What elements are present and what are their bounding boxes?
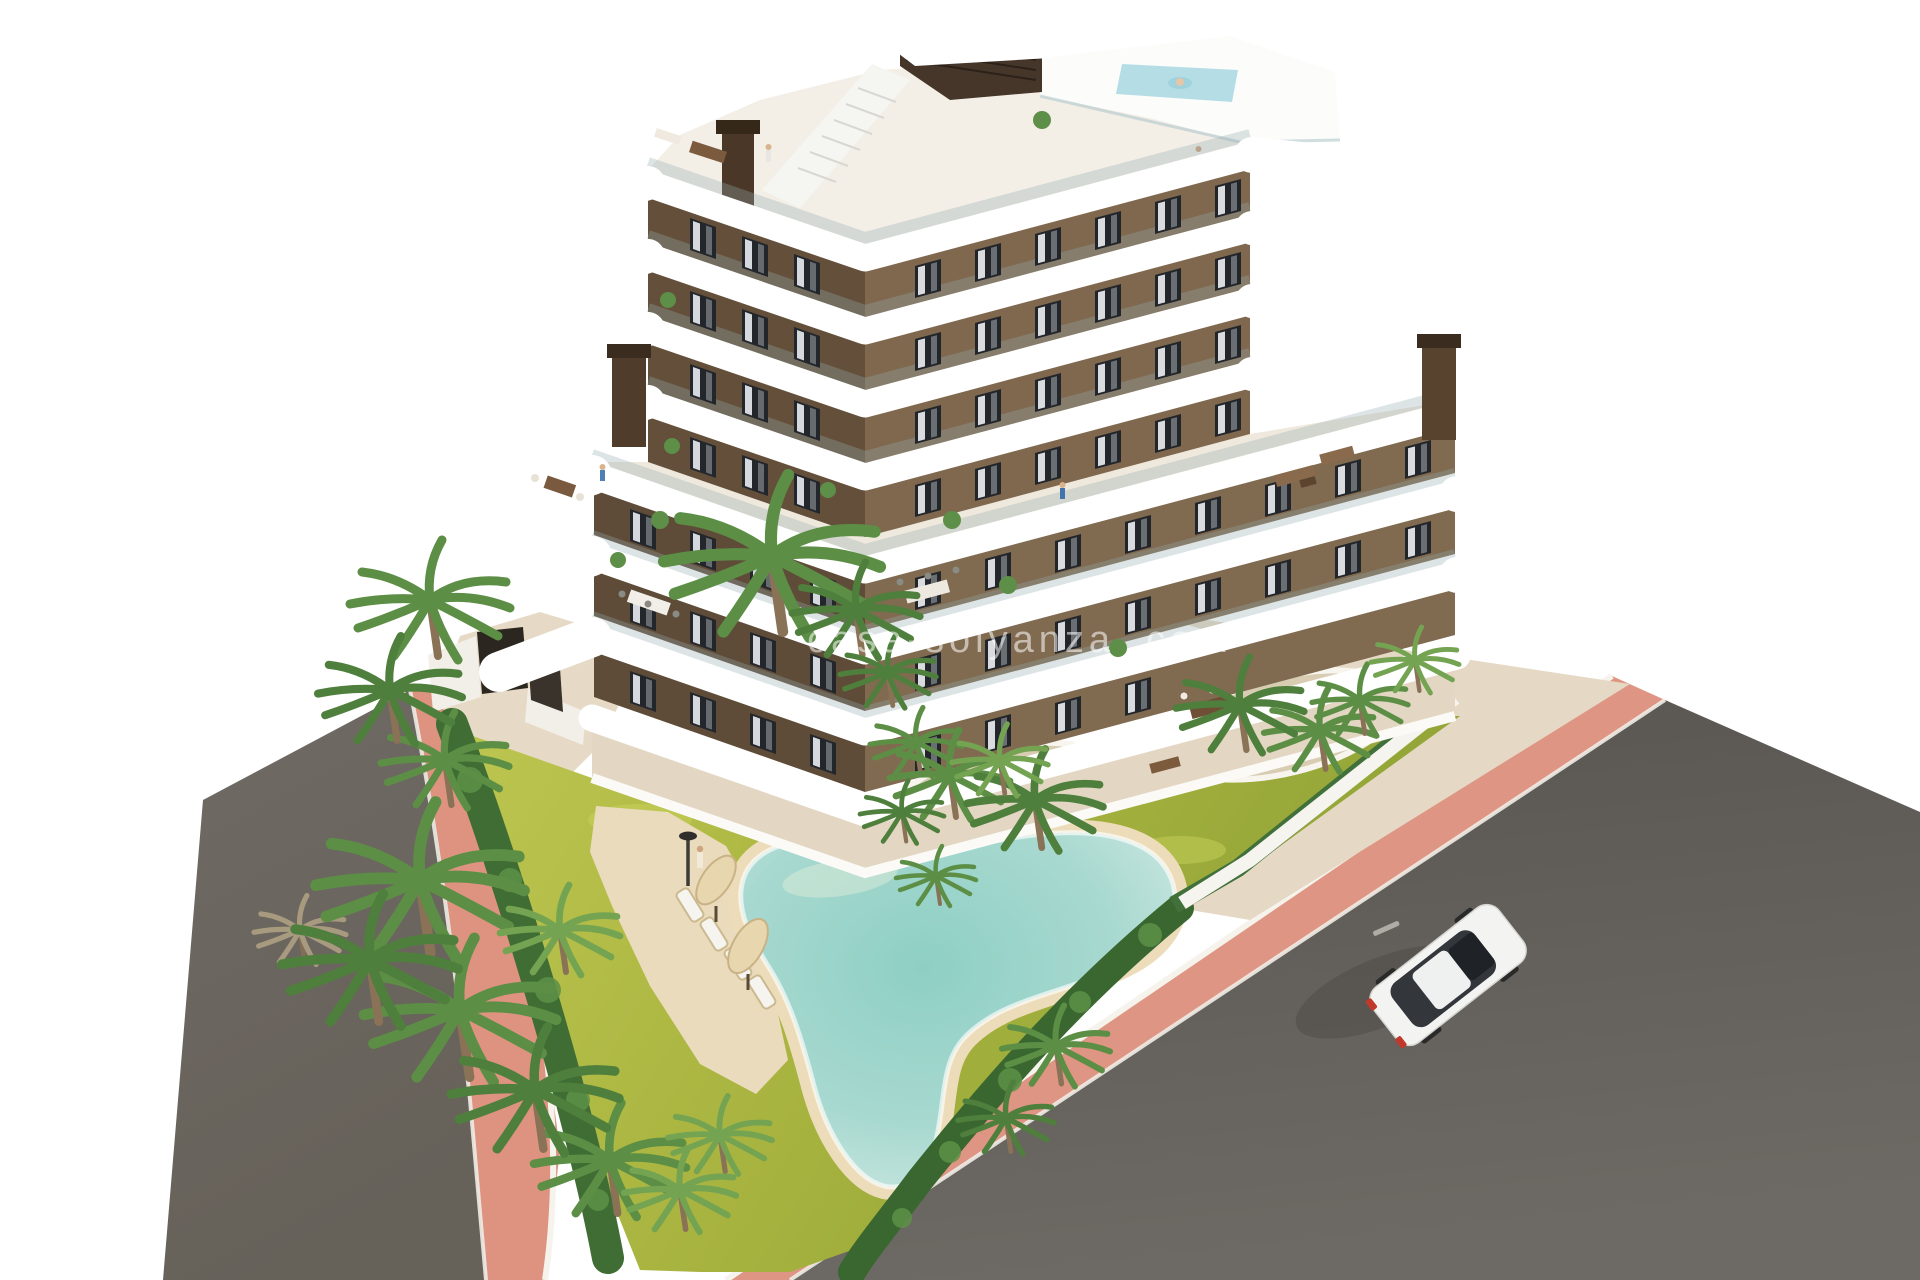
watermark-text: casa-solyanza .com xyxy=(807,619,1233,661)
chimney xyxy=(612,352,646,447)
chimney xyxy=(1422,342,1456,440)
chimney-cap xyxy=(1417,334,1461,348)
render-page: casa-solyanza .com xyxy=(0,0,1920,1280)
person-in-pool xyxy=(1176,78,1184,86)
render-canvas: casa-solyanza .com xyxy=(0,0,1920,1280)
chimney-cap xyxy=(607,344,651,358)
person xyxy=(766,150,771,162)
chimney-cap xyxy=(716,120,760,134)
person xyxy=(600,470,605,481)
person xyxy=(1060,488,1065,499)
person-by-pool xyxy=(697,846,703,868)
